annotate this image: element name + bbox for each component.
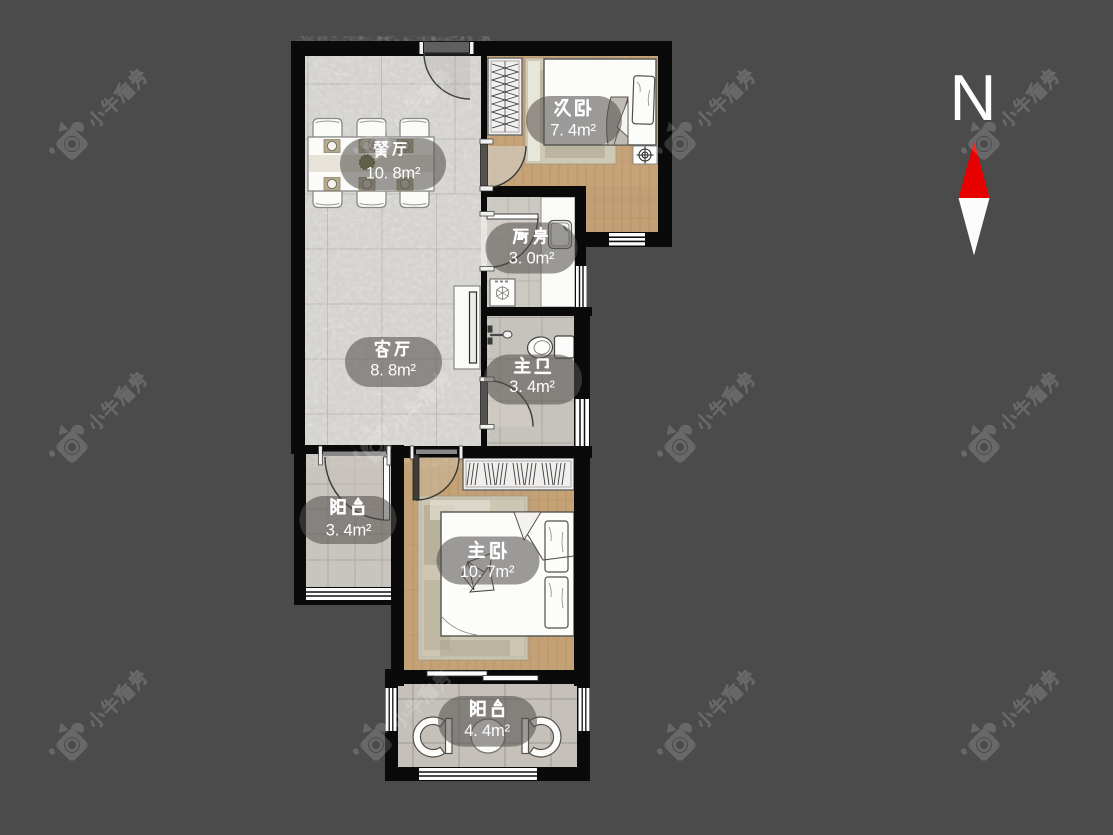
- svg-text:8. 8m²: 8. 8m²: [370, 362, 416, 380]
- svg-text:3. 4m²: 3. 4m²: [326, 522, 372, 540]
- svg-text:7. 4m²: 7. 4m²: [550, 122, 596, 140]
- svg-text:3. 4m²: 3. 4m²: [509, 378, 555, 396]
- svg-text:10. 8m²: 10. 8m²: [366, 165, 421, 183]
- svg-text:4. 4m²: 4. 4m²: [464, 722, 510, 740]
- svg-text:3. 0m²: 3. 0m²: [509, 250, 555, 268]
- svg-text:10. 7m²: 10. 7m²: [460, 563, 515, 581]
